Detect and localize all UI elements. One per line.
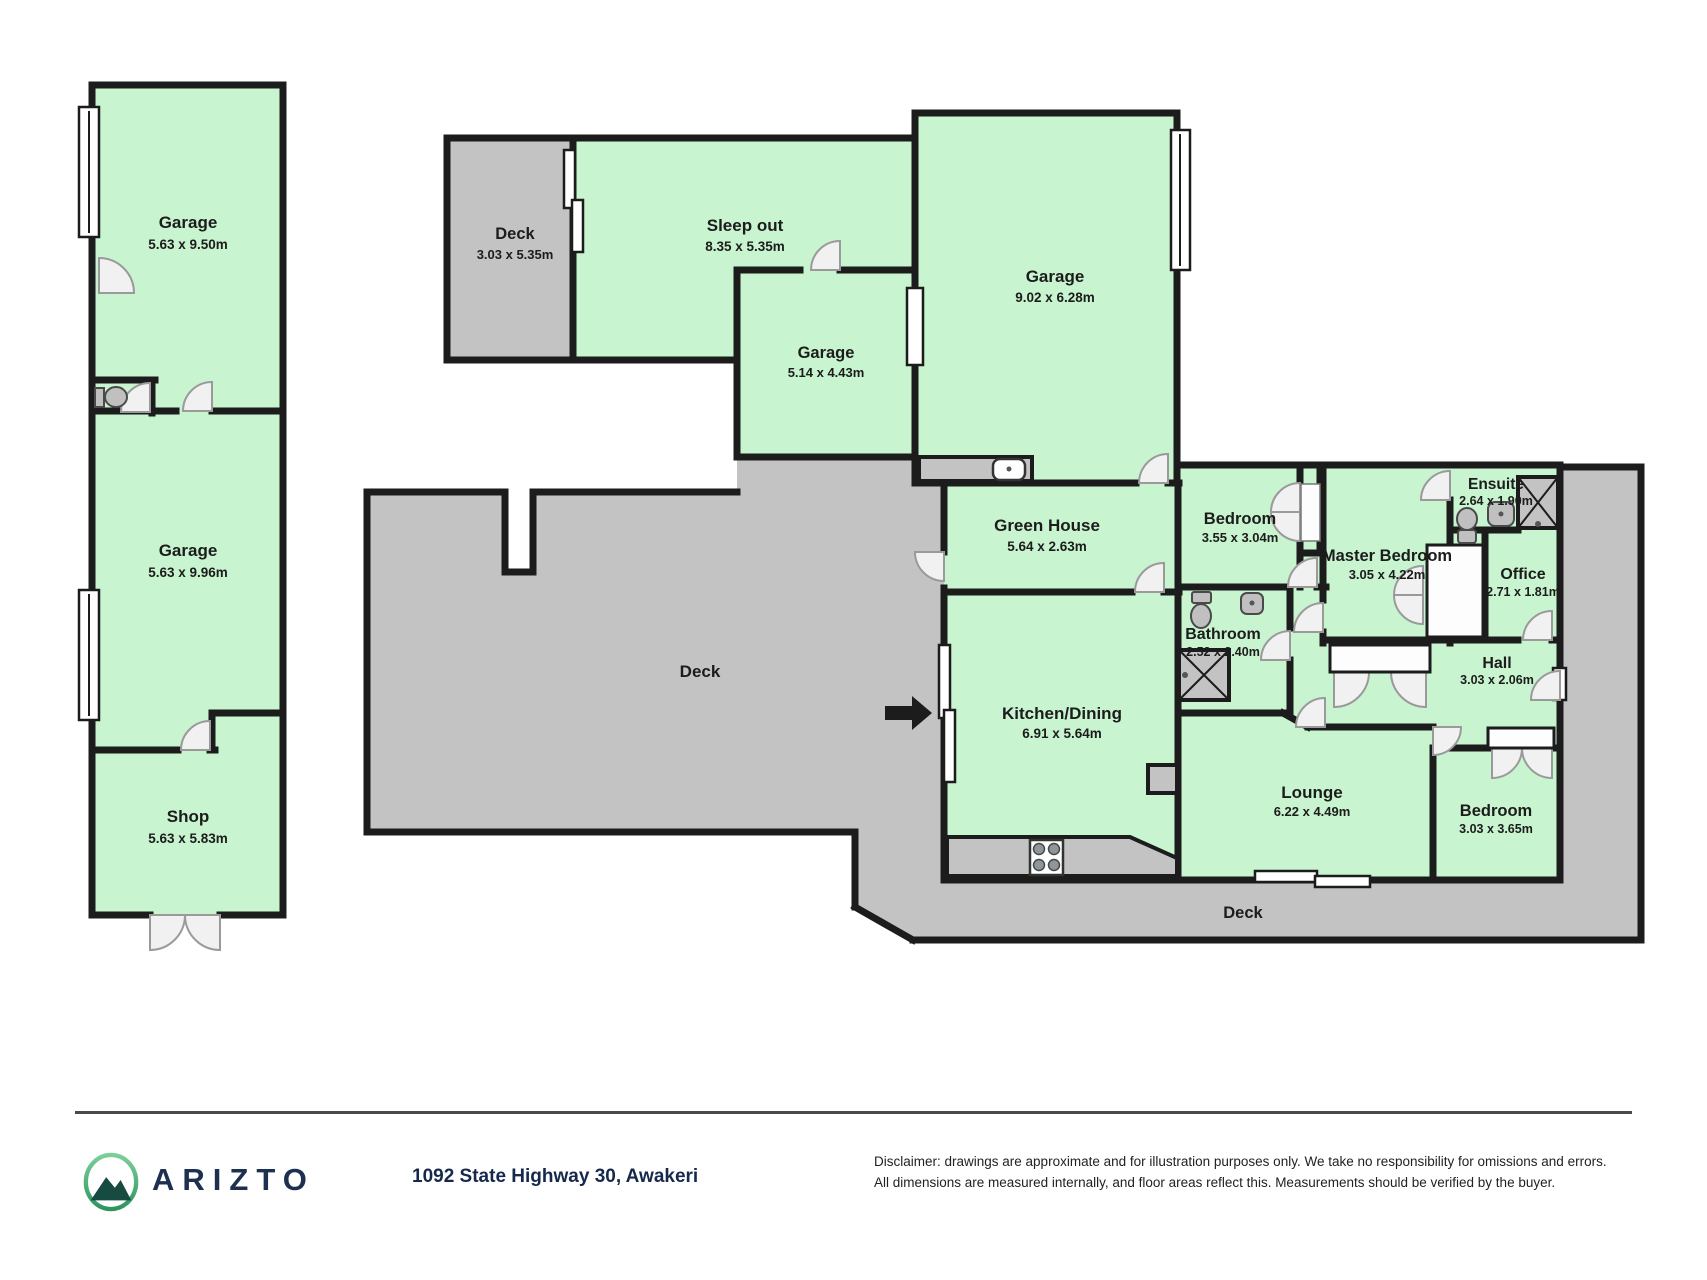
room-dims: 3.03 x 2.06m (1460, 673, 1534, 687)
toilet-icon (95, 388, 104, 407)
disclaimer-line-2: All dimensions are measured internally, … (874, 1173, 1664, 1194)
room-dims: 5.63 x 9.50m (148, 237, 228, 252)
room-dims: 3.03 x 5.35m (477, 247, 554, 262)
room-label: Office (1500, 566, 1545, 583)
floor-plan-page: Garage5.63 x 9.50mGarage5.63 x 9.96mShop… (0, 0, 1707, 1280)
disclaimer-line-1: Disclaimer: drawings are approximate and… (874, 1152, 1664, 1173)
fixtures-shape (105, 387, 127, 407)
window (1255, 871, 1317, 882)
window (572, 200, 583, 252)
room-dims: 3.55 x 3.04m (1202, 530, 1279, 545)
footer-divider (75, 1111, 1632, 1114)
room-label: Deck (680, 662, 721, 681)
room-label: Master Bedroom (1322, 547, 1452, 565)
door-swing (185, 915, 220, 950)
window (944, 710, 955, 782)
room-label: Bedroom (1204, 510, 1276, 528)
room-label: Garage (798, 344, 855, 362)
room-dims: 2.64 x 1.90m (1459, 494, 1533, 508)
property-address: 1092 State Highway 30, Awakeri (412, 1166, 698, 1188)
toilet-icon (1192, 592, 1211, 603)
fixtures-shape (1049, 844, 1060, 855)
door-swing (150, 915, 185, 950)
room-dims: 3.05 x 4.22m (1349, 567, 1426, 582)
room-dims: 5.14 x 4.43m (788, 365, 865, 380)
window (907, 288, 923, 365)
room-label: Garage (159, 541, 218, 560)
room-label: Lounge (1281, 783, 1342, 802)
room-label: Kitchen/Dining (1002, 704, 1122, 723)
room-dims: 9.02 x 6.28m (1015, 290, 1095, 305)
room-label: Deck (495, 225, 535, 243)
fixtures-shape (1191, 604, 1211, 628)
brand-name: ARIZTO (152, 1162, 315, 1198)
room-label: Bedroom (1460, 802, 1532, 820)
room-dims: 5.63 x 5.83m (148, 831, 228, 846)
toilet-icon (1457, 508, 1477, 530)
fixtures-shape (1250, 601, 1255, 606)
wardrobe (1301, 484, 1320, 541)
fixtures-shape (1535, 521, 1541, 527)
hall-cupboard (1330, 645, 1430, 672)
room-dims: 6.91 x 5.64m (1022, 726, 1102, 741)
room-label: Garage (1026, 267, 1085, 286)
fixtures-shape (1007, 467, 1012, 472)
fixtures-shape (1034, 844, 1045, 855)
room-dims: 2.71 x 1.81m (1486, 585, 1560, 599)
room-dims: 2.52 x 2.40m (1186, 645, 1260, 659)
room-dims: 3.03 x 3.65m (1459, 822, 1533, 836)
fixtures-shape (1458, 530, 1476, 543)
room-label: Bathroom (1185, 626, 1261, 643)
room-label: Shop (167, 807, 210, 826)
room-label: Green House (994, 516, 1100, 535)
fixtures-shape (1049, 860, 1060, 871)
room-dims: 5.63 x 9.96m (148, 565, 228, 580)
room-label: Hall (1482, 655, 1511, 672)
fixtures-shape (1499, 512, 1504, 517)
fireplace (1148, 765, 1177, 793)
disclaimer-text: Disclaimer: drawings are approximate and… (874, 1152, 1664, 1194)
arizto-logo-icon (82, 1150, 140, 1212)
window (1315, 876, 1370, 887)
room-dims: 5.64 x 2.63m (1007, 539, 1087, 554)
room-label: Sleep out (707, 216, 784, 235)
room-dims: 8.35 x 5.35m (705, 239, 785, 254)
window (939, 645, 950, 718)
room-dims: 6.22 x 4.49m (1274, 804, 1351, 819)
outbuilding-left-fill (92, 85, 283, 915)
room-label: Deck (1223, 904, 1263, 922)
fixtures-shape (1182, 672, 1188, 678)
room-label: Ensuite (1468, 476, 1524, 493)
floor-plan-drawing: Garage5.63 x 9.50mGarage5.63 x 9.96mShop… (0, 0, 1707, 1280)
garage-small-fill (737, 270, 915, 457)
fixtures-shape (1034, 860, 1045, 871)
cupboard (1488, 728, 1554, 748)
room-label: Garage (159, 213, 218, 232)
